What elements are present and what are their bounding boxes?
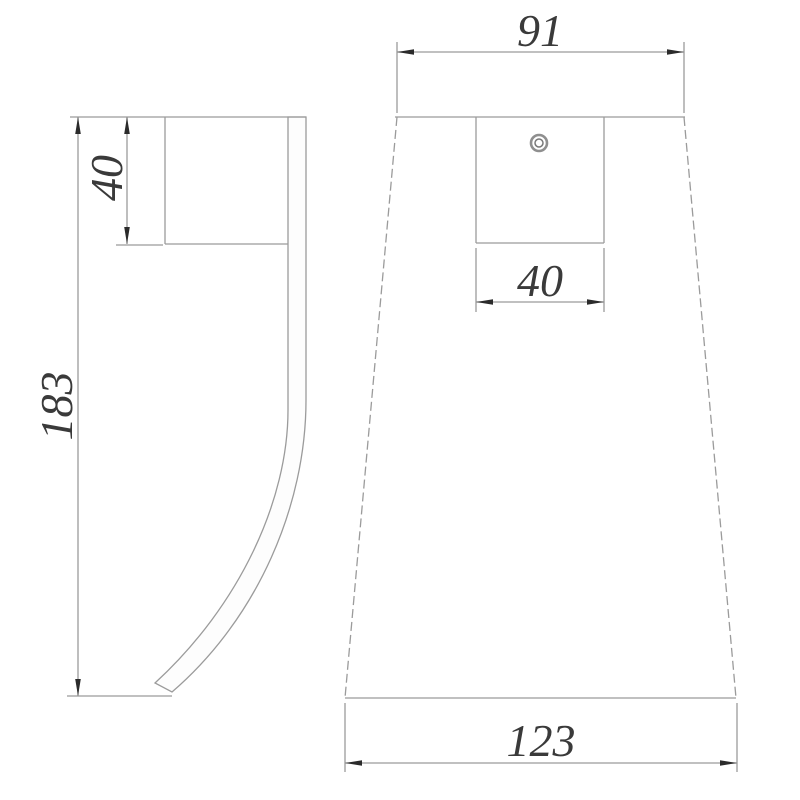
drawing-sheet: 40 183 bbox=[0, 0, 800, 800]
side-curved-strip-outline bbox=[155, 117, 306, 692]
side-dim-40-arrow-up-icon bbox=[124, 117, 130, 134]
screw-hole-inner-circle bbox=[535, 139, 543, 147]
drawing-canvas: 40 183 bbox=[0, 0, 800, 800]
front-view: 91 40 123 bbox=[345, 5, 737, 772]
front-dim-91-arrow-left-icon bbox=[397, 49, 414, 55]
side-dim-40-arrow-down-icon bbox=[124, 227, 130, 244]
front-dim-123-arrow-left-icon bbox=[345, 760, 362, 766]
front-dim-123: 123 bbox=[345, 703, 737, 772]
front-dim-40: 40 bbox=[476, 248, 604, 312]
side-dim-183-arrow-up-icon bbox=[75, 117, 81, 134]
side-dim-183: 183 bbox=[31, 117, 172, 696]
side-dim-40: 40 bbox=[81, 117, 163, 245]
front-dim-123-label: 123 bbox=[507, 715, 576, 766]
front-dim-91-arrow-right-icon bbox=[667, 49, 684, 55]
side-profile-view: 40 183 bbox=[31, 117, 306, 696]
front-dim-91-label: 91 bbox=[517, 5, 563, 56]
front-dim-40-label: 40 bbox=[517, 255, 563, 306]
side-dim-183-arrow-down-icon bbox=[75, 679, 81, 696]
front-left-slant-edge bbox=[345, 117, 397, 698]
screw-hole-outer-circle bbox=[531, 135, 547, 151]
front-dim-91: 91 bbox=[397, 5, 684, 113]
screw-hole-icon bbox=[531, 135, 547, 151]
front-dim-40-arrow-left-icon bbox=[476, 299, 493, 305]
front-right-slant-edge bbox=[684, 117, 736, 698]
front-dim-123-arrow-right-icon bbox=[720, 760, 737, 766]
side-dim-40-label: 40 bbox=[81, 155, 132, 201]
front-dim-40-arrow-right-icon bbox=[587, 299, 604, 305]
side-dim-183-label: 183 bbox=[31, 372, 82, 441]
